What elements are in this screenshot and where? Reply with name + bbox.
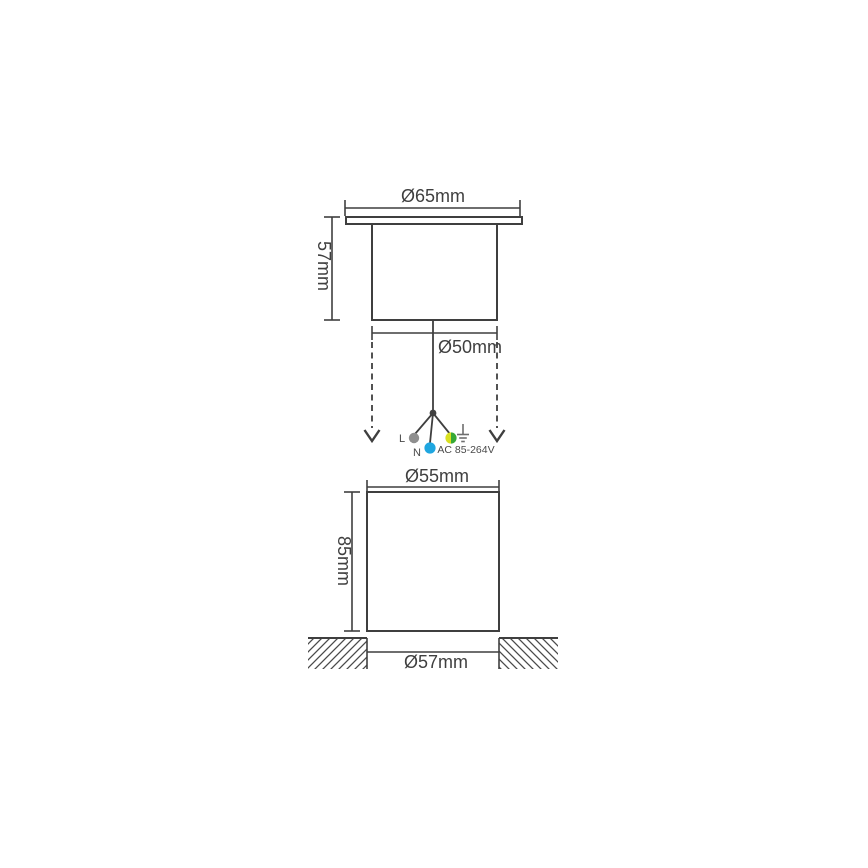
wiring-diagram: L N AC 85-264V	[399, 410, 495, 459]
wire-earth	[433, 413, 450, 434]
neutral-terminal	[424, 442, 435, 453]
wire-neutral	[430, 413, 433, 443]
ground-light-dimension-drawing: Ø65mm 57mm Ø50mm	[0, 0, 868, 868]
body-diameter-label: Ø50mm	[438, 337, 502, 357]
technical-drawing-page: Ø65mm 57mm Ø50mm	[0, 0, 868, 868]
wire-live	[415, 413, 433, 434]
down-arrow-icon	[365, 430, 380, 441]
fixture-body-outline	[372, 224, 497, 320]
fixture-flange-outline	[346, 217, 522, 224]
fixture-height-label: 57mm	[314, 241, 334, 291]
ground-hatch-left	[308, 638, 367, 669]
mounting-sleeve-view: Ø55mm 85mm Ø57mm	[308, 466, 558, 672]
flange-diameter-label: Ø65mm	[401, 186, 465, 206]
neutral-label: N	[413, 447, 421, 459]
ground-hatch-right	[499, 638, 558, 669]
sleeve-depth-label: 85mm	[334, 536, 354, 586]
mounting-sleeve-outline	[367, 492, 499, 631]
live-terminal	[409, 433, 419, 443]
cutout-diameter-label: Ø57mm	[404, 652, 468, 672]
sleeve-diameter-label: Ø55mm	[405, 466, 469, 486]
live-label: L	[399, 433, 405, 445]
earth-terminal	[445, 432, 456, 443]
earth-ground-icon	[457, 424, 469, 442]
fixture-front-view: Ø65mm 57mm Ø50mm	[314, 186, 522, 413]
voltage-rating-label: AC 85-264V	[437, 444, 494, 456]
down-arrow-icon	[490, 430, 505, 441]
